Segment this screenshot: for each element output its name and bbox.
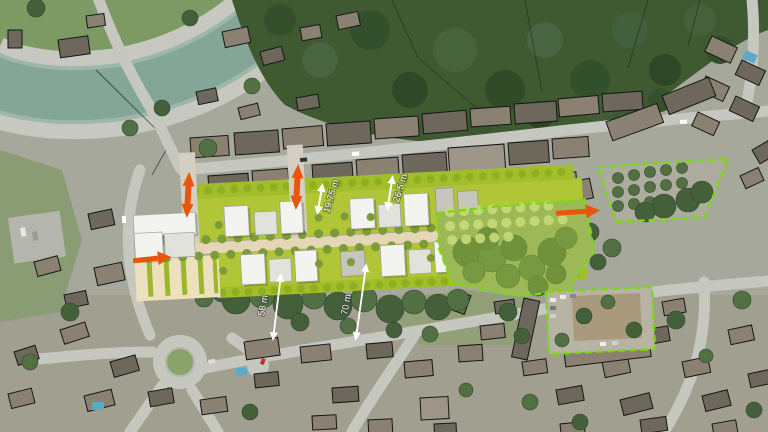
roundabout: [153, 335, 207, 389]
reserve-parcel-south: [546, 287, 655, 354]
map-canvas: 19.75 m 26.5 m 58 m 70 m: [0, 0, 768, 432]
swimming-pool: [92, 402, 104, 410]
swimming-pool: [236, 368, 247, 375]
aerial-masterplan-map: 19.75 m 26.5 m 58 m 70 m: [0, 0, 768, 432]
